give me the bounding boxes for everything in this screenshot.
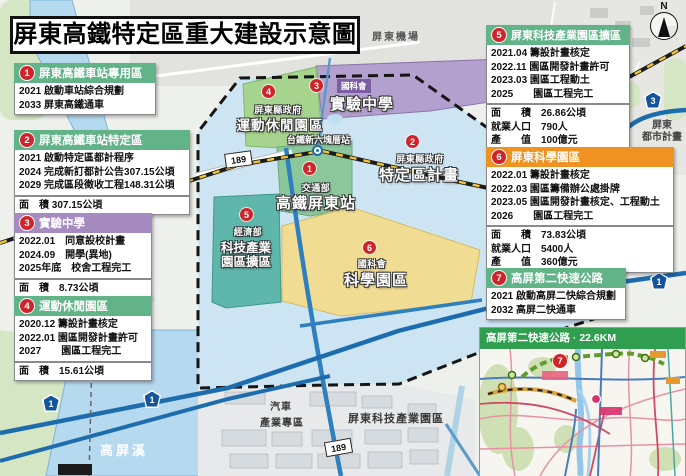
box2-row: 2021 啟動特定區都計程序 [19,152,185,166]
box4-stat: 面 積 15.61公頃 [19,365,147,379]
box5-row: 2025 園區工程完工 [491,88,625,102]
area5-name-2: 園區擴區 [221,251,271,270]
box6-row: 2022.03 園區籌備辦公處掛牌 [491,183,669,197]
box5-stat: 產 值 100億元 [491,134,625,148]
box3-title: 實驗中學 [39,215,85,231]
info-box-3: 3實驗中學 2022.01 同意設校計畫 2024.09 開學(異地) 2025… [14,213,152,298]
box7-row: 2032 高屏二快通車 [491,304,621,318]
box5-badge: 5 [491,27,507,43]
box6-stat: 就業人口 5400人 [491,243,669,257]
inset-badge-7: 7 [553,354,567,368]
map-badge-6: 6 [363,241,376,254]
area4-name: 運動休閒園區 [237,114,324,134]
map-badge-5: 5 [240,208,253,221]
box2-row: 2029 完成區段徵收工程148.31公頃 [19,179,185,193]
inset-title: 高屏第二快速公路 · 22.6KM [480,328,685,349]
inset-map: 高屏第二快速公路 · 22.6KM [479,327,686,476]
city-plan-label-2: 都市計畫 [642,128,682,143]
box5-title: 屏東科技產業園區擴區 [511,27,621,43]
box2-stat: 面 積 307.15公頃 [19,199,185,213]
box7-row: 2021 啟動高屏二快綜合規劃 [491,290,621,304]
box6-row: 2022.01 籌設計畫核定 [491,169,669,183]
box5-row: 2023.03 園區工程動土 [491,74,625,88]
area1-name: 高鐵屏東站 [276,192,356,213]
box6-row: 2023.05 園區開發計畫核定、工程動土 [491,196,669,210]
river-label: 高屏溪 [100,440,148,459]
box2-row: 2024 完成新訂都計公告307.15公頃 [19,166,185,180]
box1-row: 2021 啟動車站綜合規劃 [19,85,151,99]
box7-badge: 7 [491,270,507,286]
map-canvas: 屏東高鐵特定區重大建設示意圖 N 屏東機場 屏東 都市計畫 高屏溪 汽車 產業專… [0,0,686,476]
box3-row: 2025年底 校舍工程完工 [19,262,147,276]
box4-row: 2020.12 籌設計畫核定 [19,318,147,332]
box7-title: 高屏第二快速公路 [511,270,603,286]
area2-name: 特定區計畫 [379,164,459,185]
box2-badge: 2 [19,132,35,148]
area3-name: 實驗中學 [330,93,394,114]
box5-row: 2022.11 園區開發計畫許可 [491,61,625,75]
box3-row: 2024.09 開學(異地) [19,249,147,263]
box4-row: 2022.01 園區開發計畫許可 [19,332,147,346]
box6-row: 2026 園區工程完工 [491,210,669,224]
compass: N [649,2,679,40]
compass-n-label: N [649,2,679,12]
compass-circle [650,12,678,40]
box5-stat: 面 積 26.86公頃 [491,107,625,121]
page-title: 屏東高鐵特定區重大建設示意圖 [10,16,360,54]
area6-name: 科學園區 [344,269,408,290]
auto-zone-label-1: 汽車 [270,398,292,413]
inset-road-map [480,349,685,476]
info-box-7: 7高屏第二快速公路 2021 啟動高屏二快綜合規劃 2032 高屏二快通車 [486,268,626,320]
box4-badge: 4 [19,298,35,314]
box3-badge: 3 [19,215,35,231]
airport-label: 屏東機場 [372,28,420,43]
info-box-1: 1屏東高鐵車站專用區 2021 啟動車站綜合規劃 2033 屏東高鐵通車 [14,63,156,115]
box4-title: 運動休閒園區 [39,298,108,314]
box6-badge: 6 [491,149,507,165]
train-station-icon [312,145,323,156]
info-box-2: 2屏東高鐵車站特定區 2021 啟動特定區都計程序 2024 完成新訂都計公告3… [14,130,190,215]
box5-row: 2021.04 籌設計畫核定 [491,47,625,61]
map-badge-1: 1 [303,162,316,175]
box6-stat: 面 積 73.83公頃 [491,229,669,243]
box1-title: 屏東高鐵車站專用區 [39,65,143,81]
map-badge-3: 3 [310,79,323,92]
box3-row: 2022.01 同意設校計畫 [19,235,147,249]
box5-stat: 就業人口 790人 [491,121,625,135]
industrial-park-label: 屏東科技產業園區 [348,410,444,426]
north-arrow-icon [658,17,670,37]
map-badge-2: 2 [406,135,419,148]
rail-station-label: 台鐵新六塊厝站 [287,133,350,146]
box6-title: 屏東科學園區 [511,149,580,165]
map-badge-4: 4 [262,85,275,98]
box1-row: 2033 屏東高鐵通車 [19,99,151,113]
box3-stat: 面 積 8.73公頃 [19,282,147,296]
info-box-4: 4運動休閒園區 2020.12 籌設計畫核定 2022.01 園區開發計畫許可 … [14,296,152,381]
box2-title: 屏東高鐵車站特定區 [39,132,143,148]
info-box-5: 5屏東科技產業園區擴區 2021.04 籌設計畫核定 2022.11 園區開發計… [486,25,630,151]
box1-badge: 1 [19,65,35,81]
auto-zone-label-2: 產業專區 [260,414,304,429]
box4-row: 2027 園區工程完工 [19,345,147,359]
info-box-6: 6屏東科學園區 2022.01 籌設計畫核定 2022.03 園區籌備辦公處掛牌… [486,147,674,273]
area3-org-badge: 國科會 [337,79,371,93]
